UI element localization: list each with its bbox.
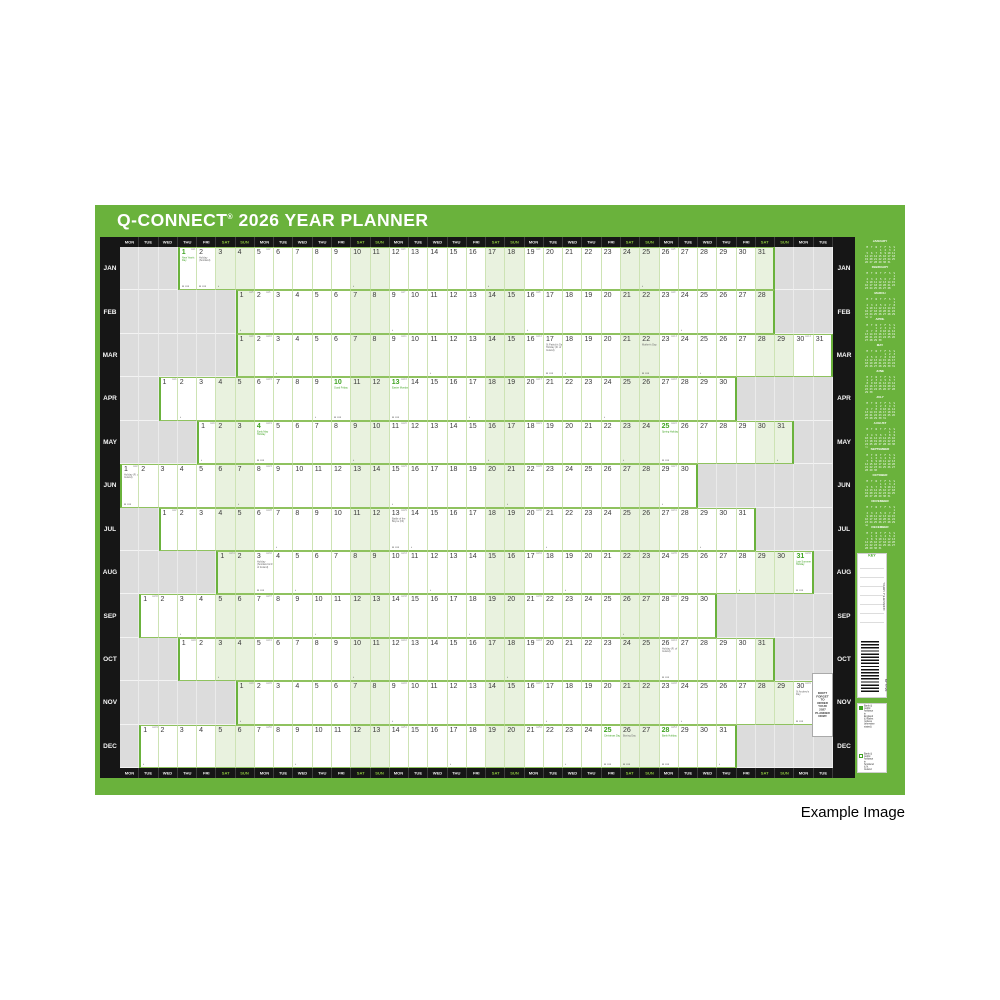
date-number: 29 <box>739 423 747 431</box>
day-header-bottom: MONTUEWEDTHUFRISATSUNMONTUEWEDTHUFRISATS… <box>120 768 833 778</box>
date-cell: 15 <box>486 551 505 594</box>
week-number: wk13 <box>671 335 677 338</box>
day-label: SUN <box>240 240 249 245</box>
date-number: 25 <box>623 510 631 518</box>
week-number: wk12 <box>536 335 542 338</box>
date-cell: 27 <box>621 464 640 507</box>
date-number: 16 <box>430 727 438 735</box>
date-number: 8 <box>353 553 357 561</box>
date-cell: 31 <box>814 334 833 377</box>
date-number: 7 <box>353 292 357 300</box>
date-cell: 6 <box>293 421 312 464</box>
date-number: 18 <box>565 292 573 300</box>
date-number: 31 <box>777 423 785 431</box>
date-number: 5 <box>315 292 319 300</box>
mini-calendar-december: DECEMBER M T W T F S S 1 2 3 4 5 6 7 8 9… <box>858 526 902 552</box>
date-number: 14 <box>488 336 496 344</box>
moon-phase-mark: ▪ <box>315 633 316 636</box>
date-number: 23 <box>604 249 612 257</box>
date-number: 29 <box>662 466 670 474</box>
date-cell: 12 <box>332 464 351 507</box>
date-number: 20 <box>604 292 612 300</box>
date-cell: 14 <box>428 247 447 290</box>
date-cell: 22 <box>640 681 659 724</box>
date-cell: 30 <box>717 377 736 420</box>
date-number: 19 <box>546 423 554 431</box>
date-cell: 19▪ <box>563 551 582 594</box>
date-cell: 12 <box>371 377 390 420</box>
day-header-cell: SAT <box>621 237 640 247</box>
month-row-sep: 1wk3623▪4567wk378910▪11121314wk381516171… <box>120 594 833 637</box>
date-cell: 11 <box>428 290 447 333</box>
year-planner-vertical-label: YEAR PLANNER <box>882 582 885 611</box>
date-cell: 10 <box>371 421 390 464</box>
date-cell: 29 <box>775 334 794 377</box>
date-cell: 3▪ <box>216 638 235 681</box>
day-label: TUE <box>144 240 152 245</box>
date-number: 13 <box>411 249 419 257</box>
date-cell: 16 <box>448 377 467 420</box>
date-cell: 24 <box>621 638 640 681</box>
date-cell: 31 <box>756 638 775 681</box>
date-cell: 1wk31 <box>216 551 235 594</box>
holiday-label: Mother's Day <box>642 344 659 347</box>
corner-cell <box>100 768 120 778</box>
date-number: 6 <box>334 683 338 691</box>
date-number: 15 <box>392 466 400 474</box>
date-number: 20 <box>527 379 535 387</box>
date-number: 23 <box>584 510 592 518</box>
date-number: 24 <box>623 640 631 648</box>
mini-calendar-month-name: JUNE <box>858 370 902 373</box>
mini-calendar-august: AUGUST M T W T F S S 1 2 3 4 5 6 7 8 9 1… <box>858 422 902 448</box>
date-number: 6 <box>218 466 222 474</box>
date-number: 1 <box>143 727 147 735</box>
date-number: 3 <box>276 683 280 691</box>
empty-cell <box>120 725 139 768</box>
week-number: wk8 <box>536 291 540 294</box>
date-number: 19 <box>507 510 515 518</box>
day-header-cell: WED <box>293 237 312 247</box>
date-number: 3 <box>180 596 184 604</box>
day-label: THU <box>318 771 326 776</box>
date-cell: 12 <box>351 594 370 637</box>
day-header-cell: SUN <box>236 768 255 778</box>
date-number: 12 <box>450 336 458 344</box>
date-number: 1 <box>163 510 167 518</box>
moon-phase-mark: ▪ <box>201 459 202 462</box>
date-cell: 8 <box>371 334 390 377</box>
date-cell: 30 <box>717 508 736 551</box>
moon-phase-mark: ▪ <box>430 372 431 375</box>
date-cell: 18 <box>563 290 582 333</box>
date-cell: 24 <box>679 334 698 377</box>
empty-cell <box>794 247 813 290</box>
date-number: 29 <box>719 249 727 257</box>
date-cell: 25 <box>621 377 640 420</box>
date-number: 22 <box>546 727 554 735</box>
day-header-cell: WED <box>563 237 582 247</box>
legend-swatch-green-outline <box>859 754 863 758</box>
date-number: 28 <box>681 379 689 387</box>
date-number: 4 <box>276 553 280 561</box>
day-header-cell: SAT <box>756 237 775 247</box>
moon-phase-mark: ▪ <box>546 720 547 723</box>
week-number: wk38 <box>401 595 407 598</box>
date-number: 18 <box>507 640 515 648</box>
date-number: 24 <box>681 292 689 300</box>
moon-phase-mark: ▪ <box>353 459 354 462</box>
date-number: 1 <box>240 683 244 691</box>
date-cell: 6 <box>236 594 255 637</box>
date-cell: 5 <box>313 681 332 724</box>
day-header-cell: MON <box>660 237 679 247</box>
date-number: 29 <box>681 596 689 604</box>
empty-cell <box>756 377 775 420</box>
date-cell: 18 <box>505 247 524 290</box>
date-number: 28 <box>700 249 708 257</box>
date-number: 15 <box>411 727 419 735</box>
week-number: wk15 <box>266 378 272 381</box>
date-number: 30 <box>719 379 727 387</box>
date-number: 15 <box>411 596 419 604</box>
date-cell: 24 <box>621 247 640 290</box>
date-cell: 25Christmas Day▪▪ ▪▪▪ <box>602 725 621 768</box>
date-cell: 28 <box>756 290 775 333</box>
week-number: wk41 <box>266 639 272 642</box>
date-cell: 27wk18 <box>660 377 679 420</box>
date-cell: 26 <box>717 290 736 333</box>
month-row-apr: 1wk142▪3456wk15789▪10Good Friday▪▪ ▪▪▪11… <box>120 377 833 420</box>
date-cell: 16wk12 <box>525 334 544 377</box>
day-label: MON <box>664 240 673 245</box>
month-label-oct: OCT <box>833 638 855 681</box>
regional-holiday-marks: ▪▪ ▪▪▪ <box>604 763 611 766</box>
planner-title: Q-CONNECT® 2026 YEAR PLANNER <box>117 210 429 237</box>
month-label-mar: MAR <box>100 334 120 377</box>
month-label-apr: APR <box>100 377 120 420</box>
regional-holiday-marks: ▪▪ ▪▪▪ <box>662 763 669 766</box>
empty-cell <box>756 594 775 637</box>
date-cell: 21 <box>621 290 640 333</box>
date-cell: 26 <box>679 421 698 464</box>
day-label: TUE <box>279 771 287 776</box>
date-cell: 17wk34 <box>525 551 544 594</box>
moon-phase-mark: ▪ <box>642 285 643 288</box>
example-image-label: Example Image <box>801 804 905 821</box>
date-cell: 8 <box>293 508 312 551</box>
moon-phase-mark: ▪ <box>430 589 431 592</box>
month-label-jan: JAN <box>100 247 120 290</box>
date-number: 12 <box>353 727 361 735</box>
date-number: 19 <box>488 596 496 604</box>
day-label: WED <box>568 771 577 776</box>
date-number: 18 <box>565 336 573 344</box>
date-cell: 16▪ <box>486 421 505 464</box>
date-number: 3 <box>238 423 242 431</box>
date-cell: 28 <box>679 508 698 551</box>
date-cell: 14 <box>428 638 447 681</box>
empty-cell <box>216 290 235 333</box>
mini-calendar-month-name: JULY <box>858 396 902 399</box>
date-number: 21 <box>623 292 631 300</box>
date-number: 23 <box>565 596 573 604</box>
date-cell: 18 <box>486 508 505 551</box>
corner-cell <box>833 768 855 778</box>
moon-phase-mark: ▪ <box>623 459 624 462</box>
week-number: wk40 <box>191 639 197 642</box>
week-number: wk46 <box>401 682 407 685</box>
date-cell: 27 <box>679 638 698 681</box>
date-cell: 15 <box>409 725 428 768</box>
date-cell: 21 <box>563 247 582 290</box>
date-cell: 12 <box>448 681 467 724</box>
date-cell: 30wk14 <box>794 334 813 377</box>
date-cell: 19 <box>582 290 601 333</box>
moon-phase-mark: ▪ <box>565 589 566 592</box>
date-number: 5 <box>295 553 299 561</box>
moon-phase-mark: ▪ <box>218 676 219 679</box>
date-number: 25 <box>681 553 689 561</box>
empty-cell <box>120 594 139 637</box>
moon-phase-mark: ▪ <box>739 589 740 592</box>
day-header-cell: TUE <box>409 768 428 778</box>
mini-calendar-month-name: FEBRUARY <box>858 266 902 269</box>
date-number: 24 <box>623 249 631 257</box>
date-cell: 15 <box>505 290 524 333</box>
date-cell: 27 <box>717 551 736 594</box>
date-cell: 9 <box>274 464 293 507</box>
date-cell: 25 <box>698 681 717 724</box>
brand-name: Q-CONNECT <box>117 210 227 230</box>
moon-phase-mark: ▪ <box>681 329 682 332</box>
date-number: 10 <box>411 336 419 344</box>
date-cell: 10Good Friday▪▪ ▪▪▪ <box>332 377 351 420</box>
moon-phase-mark: ▪ <box>238 503 239 506</box>
date-cell: 29 <box>679 594 698 637</box>
date-number: 8 <box>295 379 299 387</box>
date-number: 7 <box>353 683 357 691</box>
barcode <box>861 641 879 693</box>
mini-calendar-september: SEPTEMBER M T W T F S S 1 2 3 4 5 6 7 8 … <box>858 448 902 474</box>
day-header-cell: SAT <box>351 237 370 247</box>
date-cell: 20wk17 <box>525 377 544 420</box>
empty-cell <box>139 377 158 420</box>
date-number: 17 <box>507 423 515 431</box>
mini-calendar-month-name: JANUARY <box>858 240 902 243</box>
ruled-line <box>860 596 884 605</box>
day-header-cell: WED <box>428 768 447 778</box>
date-cell: 13 <box>467 290 486 333</box>
date-cell: 11 <box>428 681 447 724</box>
date-number: 3 <box>199 510 203 518</box>
day-label: WED <box>703 771 712 776</box>
date-number: 25 <box>642 640 650 648</box>
empty-cell <box>775 638 794 681</box>
date-cell: 19 <box>486 594 505 637</box>
date-number: 31 <box>758 249 766 257</box>
moon-phase-mark: ▪ <box>411 546 412 549</box>
day-label: THU <box>453 771 461 776</box>
date-number: 27 <box>662 379 670 387</box>
date-cell: 4 <box>197 594 216 637</box>
date-number: 23 <box>662 683 670 691</box>
empty-cell <box>756 508 775 551</box>
date-cell: 9 <box>332 638 351 681</box>
date-number: 15 <box>469 423 477 431</box>
mini-calendar-grid: M T W T F S S 1 2 3 4 5 6 7 8 9 10 11 12… <box>858 298 902 318</box>
date-number: 21 <box>527 727 535 735</box>
date-cell: 30 <box>679 464 698 507</box>
month-row-jul: 1wk2723456wk287▪8910111213wk29Battle of … <box>120 508 833 551</box>
month-row-aug: 1wk3123wk32Holiday (Scotland & R. of Ire… <box>120 551 833 594</box>
date-cell: 11wk20 <box>390 421 409 464</box>
empty-cell <box>197 334 216 377</box>
moon-phase-mark: ▪ <box>681 720 682 723</box>
date-number: 24 <box>681 336 689 344</box>
date-number: 3 <box>218 640 222 648</box>
empty-cell <box>756 725 775 768</box>
date-cell: 5 <box>313 290 332 333</box>
date-number: 9 <box>334 640 338 648</box>
date-cell: 4wk19Early May Holiday▪▪ ▪▪▪ <box>255 421 274 464</box>
date-number: 4 <box>218 379 222 387</box>
mini-calendar-grid: M T W T F S S 1 2 3 4 5 6 7 8 9 10 11 12… <box>858 454 902 472</box>
date-number: 11 <box>430 292 437 300</box>
date-cell: 13 <box>371 725 390 768</box>
day-header-cell: SAT <box>621 768 640 778</box>
moon-phase-mark: ▪ <box>469 633 470 636</box>
week-number: wk9 <box>249 335 253 338</box>
date-number: 29 <box>681 727 689 735</box>
month-label-sep: SEP <box>833 594 855 637</box>
day-header-cell: TUE <box>814 237 833 247</box>
date-number: 29 <box>758 553 766 561</box>
date-cell: 26 <box>698 551 717 594</box>
date-cell: 27wk31 <box>660 508 679 551</box>
date-number: 15 <box>507 683 515 691</box>
day-header-cell: SAT <box>486 768 505 778</box>
day-header-cell: WED <box>698 237 717 247</box>
date-number: 21 <box>507 466 515 474</box>
date-number: 20 <box>527 510 535 518</box>
date-cell: 28 <box>717 421 736 464</box>
day-header-cell: WED <box>159 768 178 778</box>
date-cell: 15 <box>428 508 447 551</box>
empty-cell <box>794 464 813 507</box>
date-cell: 10▪ <box>351 638 370 681</box>
date-number: 30 <box>796 336 804 344</box>
week-number: wk18 <box>210 422 216 425</box>
date-number: 30 <box>700 596 708 604</box>
day-header-cell: FRI <box>737 237 756 247</box>
date-number: 18 <box>469 727 477 735</box>
month-label-jan: JAN <box>833 247 855 290</box>
date-number: 31 <box>816 336 824 344</box>
date-number: 14 <box>373 466 381 474</box>
date-number: 22 <box>604 423 612 431</box>
date-cell: 13wk29Battle of the Boyne (NI)▪▪ ▪▪▪ <box>390 508 409 551</box>
date-number: 16 <box>430 596 438 604</box>
date-cell: 25wk22Spring Holiday▪▪ ▪▪▪ <box>660 421 679 464</box>
date-number: 1 <box>143 596 147 604</box>
date-cell: 6wk28 <box>255 508 274 551</box>
date-cell: 11 <box>351 508 370 551</box>
day-header-cell: TUE <box>139 237 158 247</box>
date-number: 26 <box>623 727 631 735</box>
date-number: 22 <box>584 640 592 648</box>
date-number: 11 <box>430 336 437 344</box>
day-header-cell: TUE <box>679 768 698 778</box>
date-cell: 27 <box>737 334 756 377</box>
date-cell: 7▪ <box>274 508 293 551</box>
date-cell: 26▪ <box>621 594 640 637</box>
month-label-jun: JUN <box>100 464 120 507</box>
date-number: 18 <box>546 553 554 561</box>
date-number: 7 <box>276 379 280 387</box>
date-cell: 14 <box>371 464 390 507</box>
date-cell: 18 <box>486 377 505 420</box>
moon-phase-mark: ▪ <box>719 763 720 766</box>
empty-cell <box>139 638 158 681</box>
week-number: wk35 <box>671 552 677 555</box>
mini-calendar-march: MARCH M T W T F S S 1 2 3 4 5 6 7 8 9 10… <box>858 292 902 318</box>
date-number: 5 <box>238 379 242 387</box>
date-number: 18 <box>450 466 458 474</box>
day-header-cell: FRI <box>467 237 486 247</box>
date-cell: 26 <box>717 334 736 377</box>
date-cell: 24 <box>640 421 659 464</box>
day-label: MON <box>394 240 403 245</box>
mini-calendar-month-name: APRIL <box>858 318 902 321</box>
week-number: wk18 <box>671 378 677 381</box>
mini-calendar-grid: M T W T F S S 1 2 3 4 5 6 7 8 9 10 11 12… <box>858 402 902 420</box>
date-number: 17 <box>527 553 535 561</box>
day-label: WED <box>433 240 442 245</box>
date-number: 17 <box>430 466 438 474</box>
date-cell: 17▪ <box>544 681 563 724</box>
month-label-oct: OCT <box>100 638 120 681</box>
regional-holiday-marks: ▪▪ ▪▪▪ <box>623 763 630 766</box>
date-cell: 20 <box>602 290 621 333</box>
empty-cell <box>178 334 197 377</box>
month-label-apr: APR <box>833 377 855 420</box>
date-cell: 30 <box>737 247 756 290</box>
date-number: 2 <box>257 292 261 300</box>
empty-cell <box>197 681 216 724</box>
date-cell: 30wk49St Andrew's Day▪▪ ▪▪▪ <box>794 681 813 724</box>
date-number: 18 <box>565 683 573 691</box>
date-cell: 3 <box>178 725 197 768</box>
ruled-line <box>860 614 884 623</box>
date-cell: 10wk33 <box>390 551 409 594</box>
date-cell: 20 <box>544 247 563 290</box>
date-cell: 9 <box>313 508 332 551</box>
date-number: 16 <box>527 336 535 344</box>
date-number: 12 <box>373 379 381 387</box>
week-number: wk29 <box>401 509 407 512</box>
date-number: 3 <box>199 379 203 387</box>
date-number: 27 <box>642 596 650 604</box>
date-number: 28 <box>758 292 766 300</box>
date-cell: 10 <box>313 725 332 768</box>
date-number: 8 <box>276 596 280 604</box>
date-number: 10 <box>315 727 323 735</box>
date-cell: 31▪ <box>717 725 736 768</box>
date-number: 12 <box>450 292 458 300</box>
day-label: SUN <box>510 771 519 776</box>
date-number: 15 <box>450 640 458 648</box>
